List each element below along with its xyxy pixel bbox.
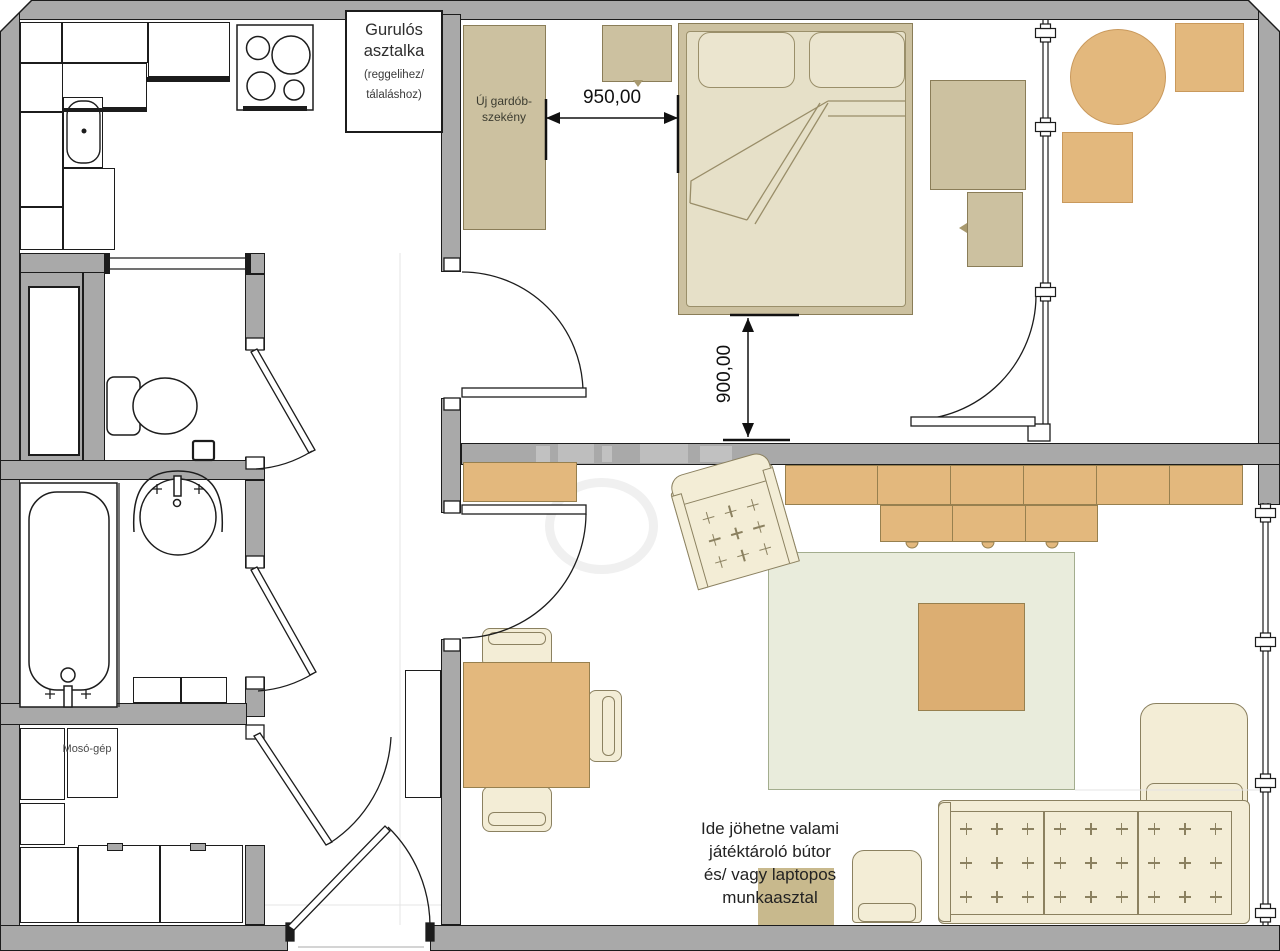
toilet-icon xyxy=(107,377,214,460)
kitchen-cabinet xyxy=(20,207,63,250)
living-cabinet xyxy=(463,462,577,502)
wall-bath-right-upper xyxy=(245,480,265,568)
loggia-round-table xyxy=(1070,29,1166,125)
tufting-plus-icon xyxy=(758,541,773,556)
rolling-table-subtitle-2: tálaláshoz) xyxy=(347,88,441,103)
tufting-plus-icon xyxy=(729,526,744,541)
wall-top xyxy=(0,0,1280,20)
tufting-plus-icon xyxy=(1022,823,1034,835)
tufting-plus-icon xyxy=(1210,857,1222,869)
suggestion-note-line: Ide jöhetne valami xyxy=(650,817,890,840)
tufting-plus-icon xyxy=(746,498,761,513)
glass-partition-bedroom xyxy=(1036,20,1056,424)
tufting-plus-icon xyxy=(1022,891,1034,903)
sideboard-row-lower xyxy=(880,505,1098,542)
tufting-plus-icon xyxy=(1210,823,1222,835)
wall-right-upper xyxy=(1258,0,1280,505)
sideboard-cell xyxy=(1026,506,1097,541)
door-utility xyxy=(246,725,391,845)
bathtub-icon xyxy=(20,483,119,707)
suggestion-note-line: munkaasztal xyxy=(650,886,890,909)
wall-main-vertical-b xyxy=(441,398,461,513)
tufting-plus-icon xyxy=(713,554,728,569)
sideboard-feet xyxy=(906,542,1058,548)
cabinet-notch xyxy=(107,843,123,851)
door-bathroom xyxy=(246,556,316,691)
tufting-plus-icon xyxy=(1148,891,1160,903)
tufting-plus-icon xyxy=(1085,823,1097,835)
tufting-plus-icon xyxy=(1179,891,1191,903)
wall-bottom-right xyxy=(430,925,1280,951)
kitchen-sink-cabinet xyxy=(63,97,103,168)
tufting-plus-icon xyxy=(1179,823,1191,835)
sideboard-cell xyxy=(881,506,953,541)
tufting-plus-icon xyxy=(1054,823,1066,835)
tufting-plus-icon xyxy=(1116,857,1128,869)
door-loggia xyxy=(911,296,1050,441)
tufting-plus-icon xyxy=(991,857,1003,869)
tufting-plus-icon xyxy=(1148,857,1160,869)
door-bedroom xyxy=(444,258,586,410)
sideboard-row-upper xyxy=(785,465,1243,505)
sideboard-cell xyxy=(1097,466,1170,504)
hall-radiator xyxy=(405,670,441,798)
utility-cabinet xyxy=(20,803,65,845)
sideboard-cell xyxy=(1170,466,1242,504)
wall-utility-top xyxy=(0,703,247,725)
bedside-nightstand xyxy=(967,192,1023,267)
tufting-plus-icon xyxy=(1116,823,1128,835)
kitchen-cabinet xyxy=(20,112,63,207)
tufting-plus-icon xyxy=(701,511,716,526)
nightstand xyxy=(602,25,672,82)
kitchen-cabinet xyxy=(20,22,62,63)
tufting-plus-icon xyxy=(723,504,738,519)
utility-base-cabinet xyxy=(20,847,78,923)
tufting-plus-icon xyxy=(1022,857,1034,869)
sofa-cushion xyxy=(950,811,1044,915)
washing-machine-label: Mosó-gép xyxy=(62,742,112,757)
cabinet-notch xyxy=(190,843,206,851)
wall-bath-top xyxy=(0,460,265,480)
tufting-plus-icon xyxy=(1179,857,1191,869)
wardrobe xyxy=(463,25,546,230)
tufting-plus-icon xyxy=(960,823,972,835)
counter-edge xyxy=(147,77,230,82)
glass-partition-living xyxy=(1256,503,1276,925)
stove xyxy=(237,25,313,111)
bath-sink-icon xyxy=(134,471,223,555)
pillow xyxy=(698,32,795,88)
kitchen-cabinet xyxy=(20,63,63,112)
door-wc xyxy=(246,338,315,469)
kitchen-tall-cabinet xyxy=(63,168,115,250)
suggestion-note-line: játéktároló bútor xyxy=(650,840,890,863)
sideboard-cell xyxy=(953,506,1025,541)
wall-wc-left xyxy=(83,272,105,462)
rolling-table-subtitle-1: (reggelihez/ xyxy=(347,68,441,83)
utility-base-cabinet xyxy=(160,845,243,923)
sideboard-cell xyxy=(878,466,951,504)
kitchen-cabinet xyxy=(62,22,148,63)
tufting-plus-icon xyxy=(1148,823,1160,835)
loggia-stool xyxy=(1175,23,1244,92)
sofa-cushion xyxy=(1138,811,1232,915)
door-entrance xyxy=(286,826,434,947)
dining-chair-right-cushion xyxy=(602,696,615,756)
suggestion-note: Ide jöhetne valami játéktároló bútor és/… xyxy=(650,817,890,909)
wall-wc-right-upper xyxy=(245,274,265,350)
bedside-cabinet xyxy=(930,80,1026,190)
loggia-stool xyxy=(1062,132,1133,203)
sideboard-cell xyxy=(1024,466,1097,504)
shaft xyxy=(28,286,80,456)
rolling-table-title: Gurulós asztalka xyxy=(347,20,441,62)
coffee-table xyxy=(918,603,1025,711)
tufting-plus-icon xyxy=(991,891,1003,903)
tufting-plus-icon xyxy=(736,548,751,563)
tufting-plus-icon xyxy=(752,520,767,535)
dimension-950-label: 950,00 xyxy=(552,87,672,109)
tufting-plus-icon xyxy=(1116,891,1128,903)
bath-cabinet-divider xyxy=(180,678,182,702)
tufting-plus-icon xyxy=(1085,857,1097,869)
utility-base-cabinet xyxy=(78,845,160,923)
handle xyxy=(959,223,967,233)
tufting-plus-icon xyxy=(960,857,972,869)
wall-bath-right-lower xyxy=(245,677,265,717)
dining-table xyxy=(463,662,590,788)
dimension-900-label: 900,00 xyxy=(714,314,734,434)
dining-chair-top-cushion xyxy=(488,632,546,645)
kitchen-cabinet xyxy=(148,22,230,77)
tufting-plus-icon xyxy=(707,532,722,547)
pillow xyxy=(809,32,905,88)
utility-cabinet xyxy=(20,728,65,800)
tufting-plus-icon xyxy=(1054,857,1066,869)
wall-utility-right xyxy=(245,845,265,925)
interior-window-icon xyxy=(104,253,251,274)
tufting-plus-icon xyxy=(960,891,972,903)
wall-main-vertical-a xyxy=(441,14,461,272)
wall-kitchen-south-left xyxy=(20,253,108,274)
washing-machine xyxy=(67,728,118,798)
sofa-cushion xyxy=(1044,811,1138,915)
floor-plan: Gurulós asztalka (reggelihez/ tálaláshoz… xyxy=(0,0,1280,951)
sideboard-cell xyxy=(951,466,1024,504)
dining-chair-bottom-cushion xyxy=(488,812,546,826)
wall-bottom-left xyxy=(0,925,288,951)
tufting-plus-icon xyxy=(1054,891,1066,903)
rolling-table-note: Gurulós asztalka (reggelihez/ tálaláshoz… xyxy=(345,10,443,133)
tufting-plus-icon xyxy=(991,823,1003,835)
tufting-plus-icon xyxy=(1210,891,1222,903)
tufting-plus-icon xyxy=(1085,891,1097,903)
suggestion-note-line: és/ vagy laptopos xyxy=(650,863,890,886)
wardrobe-label: Új gardób-szekény xyxy=(472,93,536,125)
wall-main-vertical-c xyxy=(441,639,461,925)
sideboard-cell xyxy=(786,466,878,504)
wall-kitchen-south-right xyxy=(247,253,265,274)
